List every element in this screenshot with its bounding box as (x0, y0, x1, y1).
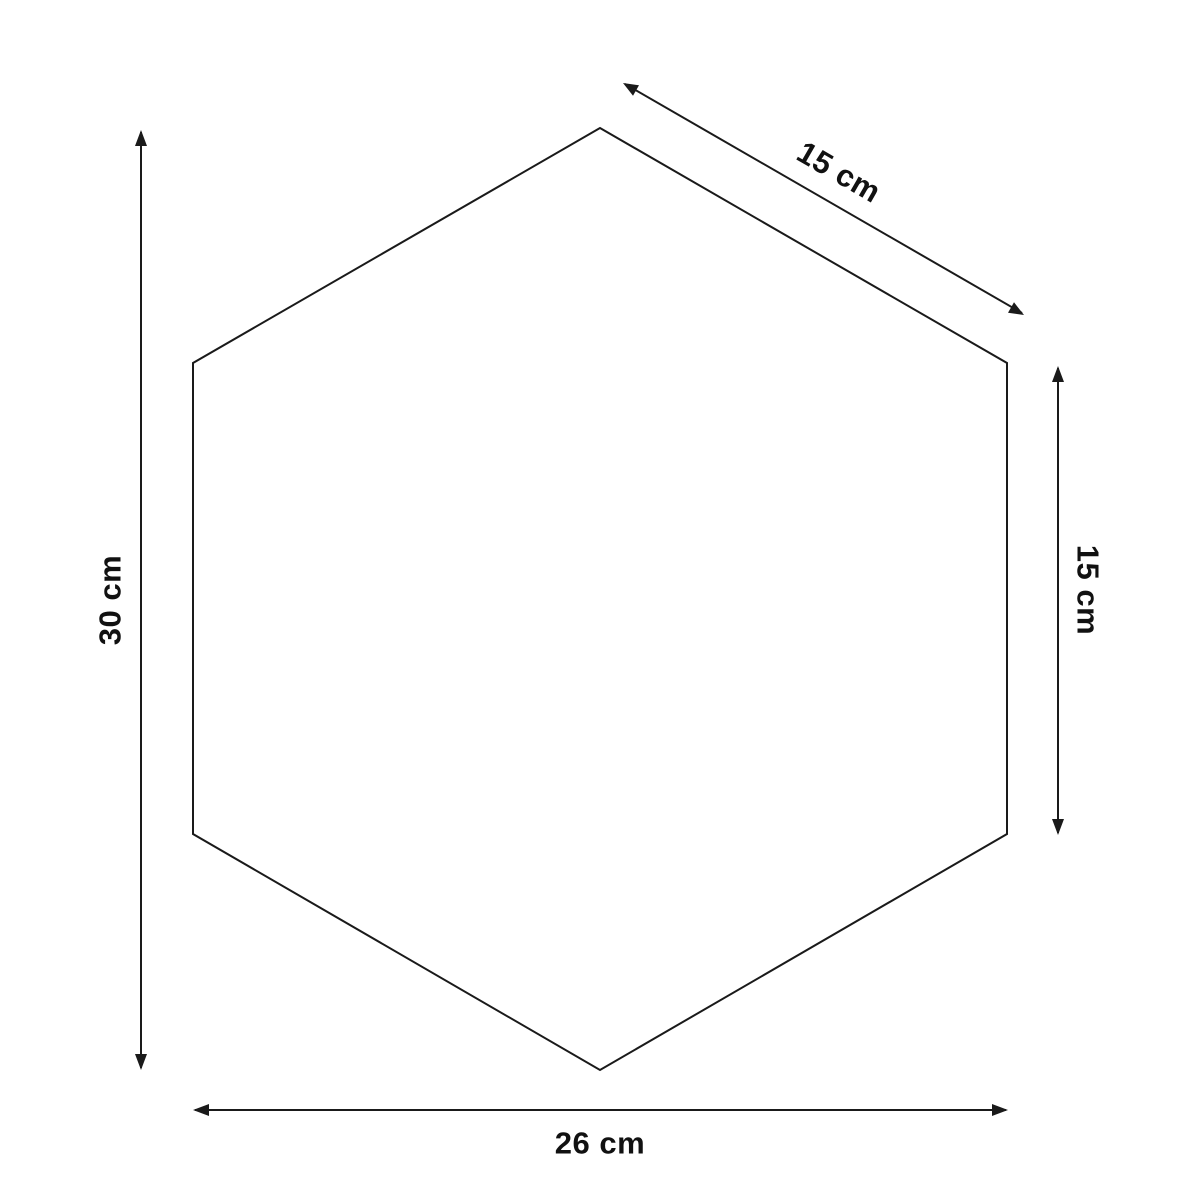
hexagon-shape (193, 128, 1007, 1070)
arrowhead-up-icon (1052, 366, 1064, 382)
arrowhead-up-left-icon (623, 83, 639, 96)
dimension-height: 30 cm (93, 130, 148, 1070)
dimension-right-side-label: 15 cm (1071, 545, 1106, 635)
dimension-width: 26 cm (193, 1104, 1008, 1161)
diagram-canvas: 30 cm 15 cm 15 cm 26 cm (0, 0, 1200, 1200)
dimension-height-label: 30 cm (93, 555, 128, 645)
arrowhead-down-icon (1052, 819, 1064, 835)
dimension-top-right-side-label: 15 cm (791, 134, 887, 210)
dimension-top-right-line (625, 84, 1022, 313)
arrowhead-left-icon (193, 1104, 209, 1116)
dimension-top-right-side: 15 cm (623, 83, 1024, 315)
hexagon-dimension-diagram: 30 cm 15 cm 15 cm 26 cm (0, 0, 1200, 1200)
arrowhead-down-right-icon (1008, 302, 1024, 315)
dimension-width-label: 26 cm (555, 1126, 645, 1161)
arrowhead-up-icon (135, 130, 147, 146)
dimension-right-side: 15 cm (1052, 366, 1106, 835)
arrowhead-down-icon (135, 1054, 147, 1070)
arrowhead-right-icon (992, 1104, 1008, 1116)
